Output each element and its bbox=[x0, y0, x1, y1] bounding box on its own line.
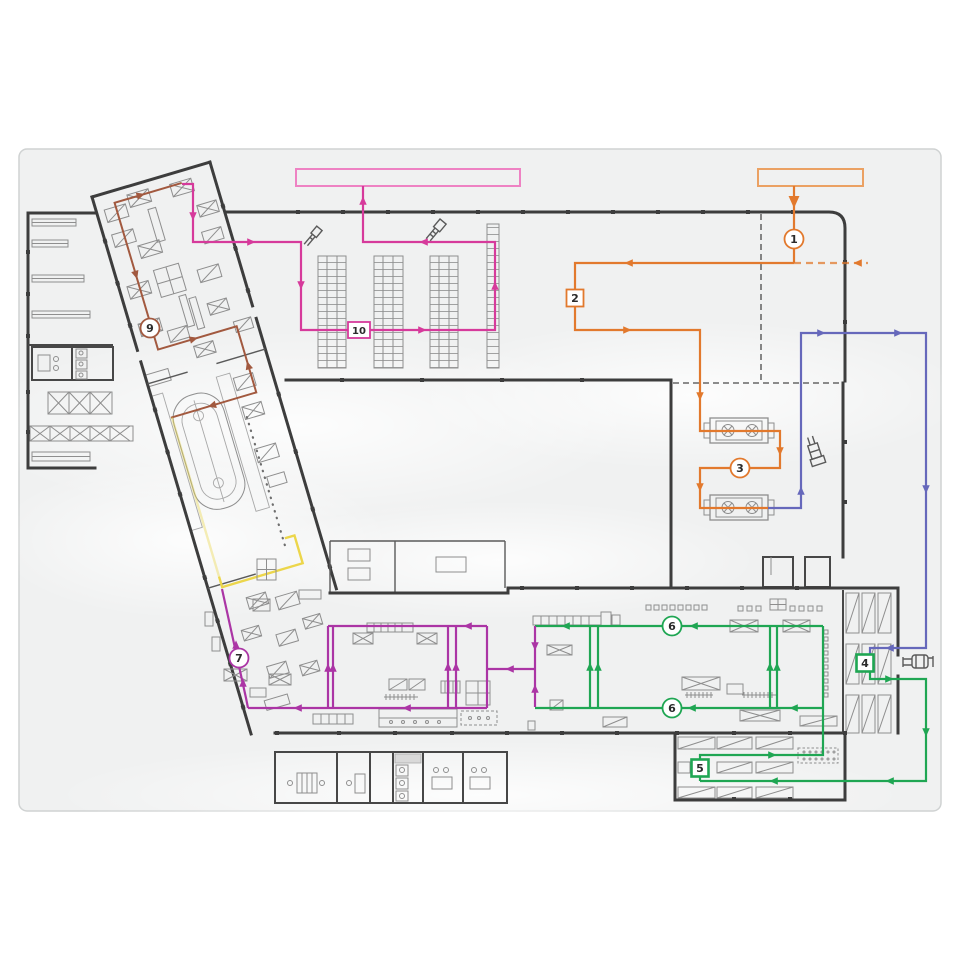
floor-plan-page: 12345667910 bbox=[0, 0, 960, 960]
plan-panel bbox=[0, 149, 960, 850]
svg-text:10: 10 bbox=[352, 326, 366, 337]
svg-text:6: 6 bbox=[668, 620, 676, 633]
route-marker-6: 6 bbox=[663, 617, 682, 636]
svg-text:3: 3 bbox=[736, 462, 744, 475]
route-marker-1: 1 bbox=[785, 230, 804, 249]
route-marker-6: 6 bbox=[663, 699, 682, 718]
route-marker-2: 2 bbox=[567, 290, 584, 307]
svg-text:5: 5 bbox=[696, 762, 704, 775]
route-marker-5: 5 bbox=[692, 760, 709, 777]
svg-text:9: 9 bbox=[146, 322, 154, 335]
svg-text:7: 7 bbox=[235, 652, 243, 665]
route-marker-4: 4 bbox=[857, 655, 874, 672]
route-marker-9: 9 bbox=[141, 319, 160, 338]
factory-floor-plan: 12345667910 bbox=[0, 0, 960, 960]
svg-text:6: 6 bbox=[668, 702, 676, 715]
route-marker-3: 3 bbox=[731, 459, 750, 478]
svg-text:1: 1 bbox=[790, 233, 798, 246]
route-marker-10: 10 bbox=[348, 322, 370, 338]
route-marker-7: 7 bbox=[230, 649, 249, 668]
svg-text:4: 4 bbox=[861, 657, 869, 670]
svg-text:2: 2 bbox=[571, 292, 579, 305]
